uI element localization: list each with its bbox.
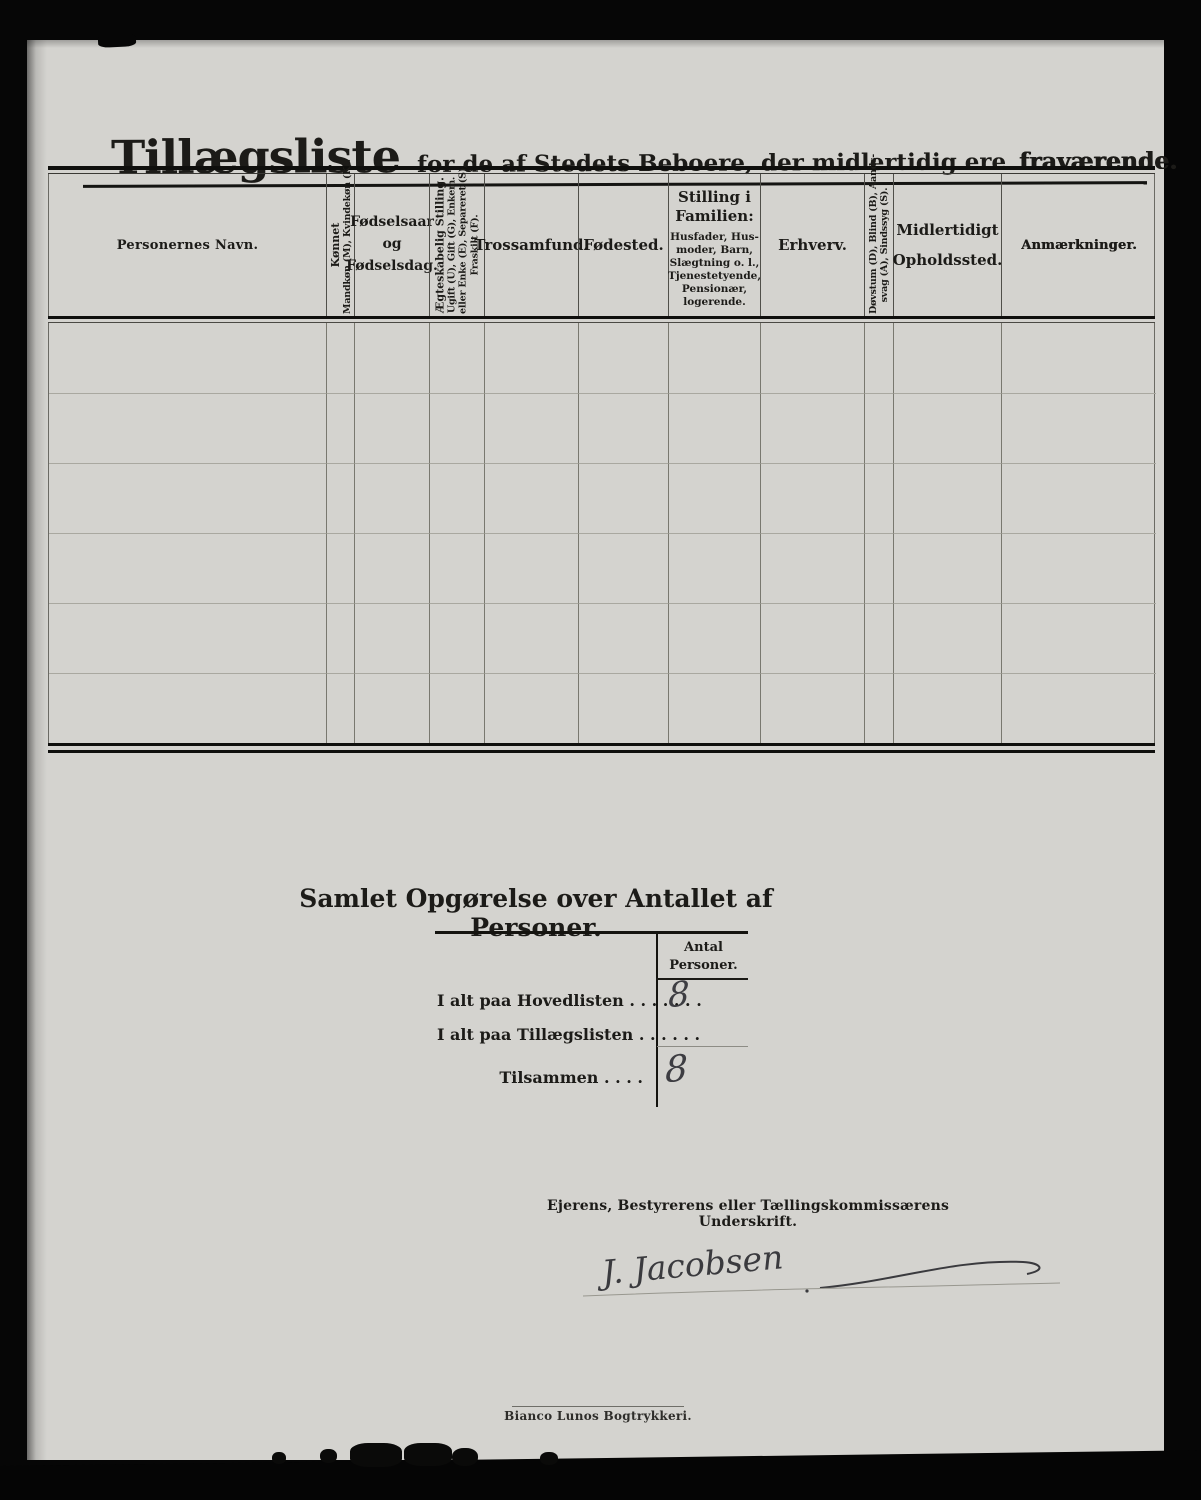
table-bottom-rule-2 xyxy=(48,750,1155,753)
signature: J. Jacobsen xyxy=(575,1228,1075,1310)
body-cell xyxy=(893,463,1001,533)
body-cell xyxy=(893,673,1001,743)
handwritten-count-tilsammen: 8 xyxy=(665,1047,688,1091)
body-cell xyxy=(578,463,668,533)
summary-top-rule xyxy=(435,931,748,934)
body-cell xyxy=(1001,393,1156,463)
handwritten-count-hovedlisten: 8 xyxy=(668,974,689,1017)
scanned-census-page: Tillægsliste for de af Stedets Beboere, … xyxy=(0,0,1201,1500)
body-cell xyxy=(760,673,864,743)
header-cell-trossamfund: Trossamfund. xyxy=(484,174,578,316)
body-cell xyxy=(760,463,864,533)
body-cell xyxy=(354,673,429,743)
bleedthrough-mark xyxy=(320,1449,337,1463)
body-cell xyxy=(578,393,668,463)
summary-divider xyxy=(656,931,658,1107)
summary-row-tillaegslisten: I alt paa Tillægslisten . . . . . . xyxy=(435,1025,651,1044)
vertical-text-doevstum: Døvstum (D), Blind (B), Aands- svag (A),… xyxy=(868,176,890,314)
body-cell xyxy=(893,533,1001,603)
body-cell xyxy=(578,533,668,603)
body-cell xyxy=(484,603,578,673)
header-cell-anmaerkninger: Anmærkninger. xyxy=(1001,174,1156,316)
body-cell xyxy=(326,463,354,533)
body-cell xyxy=(864,673,893,743)
body-cell xyxy=(354,393,429,463)
body-cell xyxy=(49,673,326,743)
body-cell xyxy=(1001,533,1156,603)
signature-name: J. Jacobsen xyxy=(594,1237,784,1292)
body-cell xyxy=(578,323,668,393)
paper-edge-notch xyxy=(98,33,137,48)
body-cell xyxy=(1001,673,1156,743)
header-cell-stilling: Stilling i Familien: Husfader, Hus- mode… xyxy=(668,174,760,316)
body-cell xyxy=(484,463,578,533)
body-cell xyxy=(578,673,668,743)
body-cell xyxy=(668,673,760,743)
body-cell xyxy=(326,673,354,743)
body-cell xyxy=(484,673,578,743)
body-cell xyxy=(864,323,893,393)
body-cell xyxy=(668,393,760,463)
body-cell xyxy=(760,603,864,673)
body-cell xyxy=(864,463,893,533)
body-cell xyxy=(760,533,864,603)
header-cell-doevstum: Døvstum (D), Blind (B), Aands- svag (A),… xyxy=(864,174,893,316)
body-cell xyxy=(668,603,760,673)
header-cell-foedested: Fødested. xyxy=(578,174,668,316)
summary-mid-rule xyxy=(657,1046,748,1047)
summary-row-hovedlisten: I alt paa Hovedlisten . . . . . . . xyxy=(435,991,651,1010)
header-cell-erhverv: Erhverv. xyxy=(760,174,864,316)
summary-col-header: Antal Personer. xyxy=(659,939,748,975)
body-cell xyxy=(429,673,484,743)
body-cell xyxy=(49,393,326,463)
imprint-rule xyxy=(512,1406,684,1407)
body-cell xyxy=(864,533,893,603)
body-cell xyxy=(668,323,760,393)
body-cell xyxy=(429,463,484,533)
body-cell xyxy=(429,533,484,603)
body-cell xyxy=(484,533,578,603)
body-cell xyxy=(1001,603,1156,673)
body-cell xyxy=(760,393,864,463)
body-cell xyxy=(1001,323,1156,393)
body-cell xyxy=(893,323,1001,393)
paper-sheet: Tillægsliste for de af Stedets Beboere, … xyxy=(27,40,1164,1460)
body-cell xyxy=(326,393,354,463)
summary-row-tilsammen: Tilsammen . . . . xyxy=(435,1068,649,1087)
body-cell xyxy=(326,603,354,673)
signature-period xyxy=(805,1289,808,1292)
signature-ink: J. Jacobsen xyxy=(575,1228,1075,1310)
body-cell xyxy=(49,323,326,393)
body-cell xyxy=(326,323,354,393)
table-body xyxy=(48,323,1155,743)
body-cell xyxy=(429,603,484,673)
body-cell xyxy=(578,603,668,673)
body-cell xyxy=(1001,463,1156,533)
body-cell xyxy=(893,603,1001,673)
body-cell xyxy=(429,393,484,463)
body-cell xyxy=(484,393,578,463)
body-cell xyxy=(326,533,354,603)
header-cell-navn: Personernes Navn. xyxy=(49,174,326,316)
printer-imprint: Bianco Lunos Bogtrykkeri. xyxy=(492,1409,704,1423)
body-cell xyxy=(893,393,1001,463)
signature-label: Ejerens, Bestyrerens eller Tællingskommi… xyxy=(508,1198,988,1230)
body-cell xyxy=(354,603,429,673)
body-cell xyxy=(354,463,429,533)
body-cell xyxy=(354,323,429,393)
bleedthrough-mark xyxy=(272,1452,286,1464)
bleedthrough-mark xyxy=(404,1443,452,1466)
body-cell xyxy=(49,463,326,533)
header-cell-foedselsaar: Fødselsaar og Fødselsdag. xyxy=(354,174,429,316)
table-top-rule xyxy=(48,166,1155,170)
body-cell xyxy=(49,533,326,603)
body-cell xyxy=(484,323,578,393)
body-cell xyxy=(354,533,429,603)
header-cell-midlertidigt: Midlertidigt Opholdssted. xyxy=(893,174,1001,316)
body-cell xyxy=(864,603,893,673)
summary-table: Antal Personer. I alt paa Hovedlisten . … xyxy=(435,931,748,1109)
body-cell xyxy=(429,323,484,393)
body-cell xyxy=(760,323,864,393)
header-bottom-rule xyxy=(48,316,1155,319)
body-cell xyxy=(49,603,326,673)
census-table: Personernes Navn. Kønnet Mandkøn (M), Kv… xyxy=(48,166,1155,753)
bleedthrough-mark xyxy=(350,1443,402,1467)
body-cell xyxy=(668,463,760,533)
bleedthrough-mark xyxy=(540,1452,558,1465)
body-cell xyxy=(864,393,893,463)
table-bottom-rule xyxy=(48,743,1155,746)
body-cell xyxy=(668,533,760,603)
bleedthrough-mark xyxy=(452,1448,478,1466)
table-header-row: Personernes Navn. Kønnet Mandkøn (M), Kv… xyxy=(48,174,1155,316)
